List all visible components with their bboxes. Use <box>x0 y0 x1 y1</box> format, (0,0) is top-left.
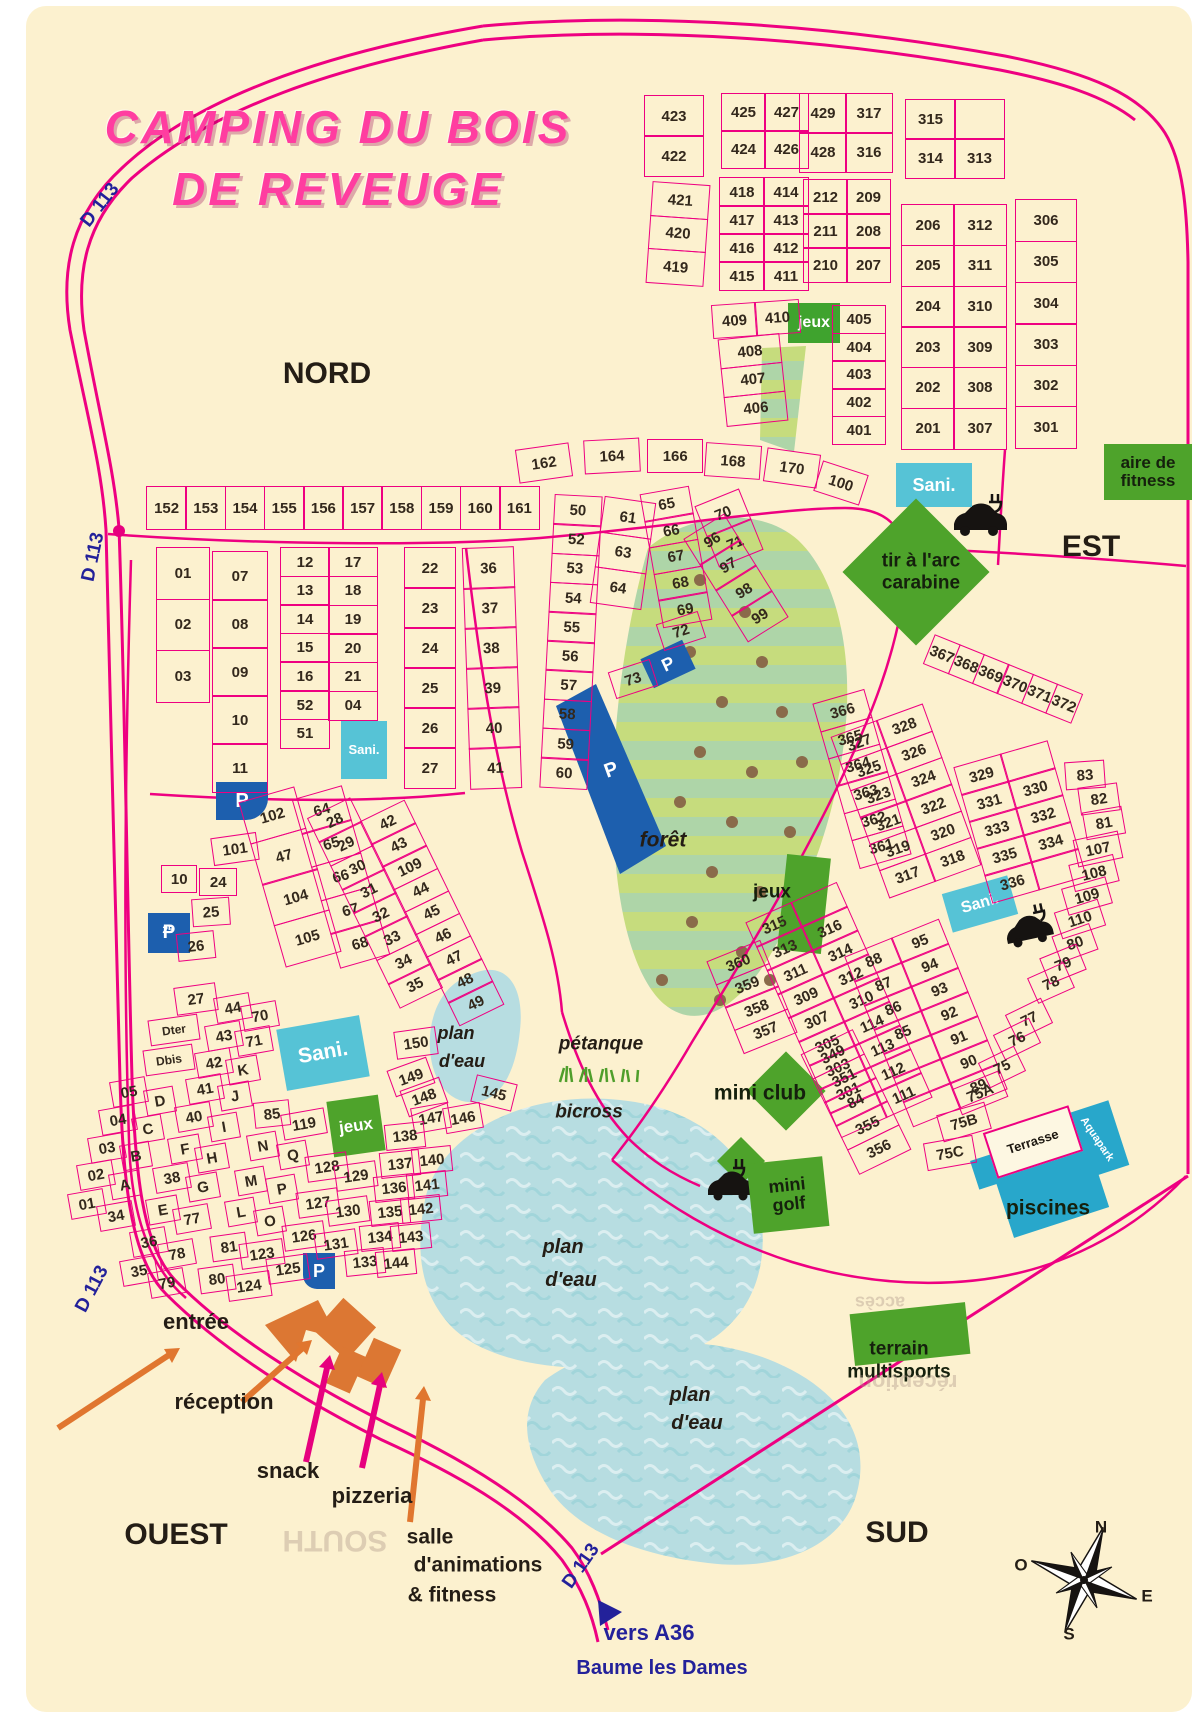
plot-60: 60 <box>540 757 589 790</box>
plot-150: 150 <box>393 1026 438 1060</box>
sani-west-label: Sani. <box>348 743 379 757</box>
plot-138: 138 <box>384 1121 426 1151</box>
label-entree: entrée <box>163 1311 229 1333</box>
label-mini-club: mini club <box>714 1083 806 1104</box>
label-baume-les-dames: Baume les Dames <box>576 1658 747 1678</box>
label-p25-sub: 25 <box>162 926 173 936</box>
plot-21: 21 <box>328 662 378 692</box>
label-compass-n: N <box>1095 1519 1107 1536</box>
plot-159: 159 <box>421 486 462 530</box>
label-snack: snack <box>257 1460 319 1482</box>
plot-17: 17 <box>328 547 378 577</box>
block-07: 0708091011 <box>213 552 267 792</box>
block-409: 409410 <box>712 300 800 338</box>
plot-422: 422 <box>644 135 704 177</box>
block-421: 421420419 <box>647 182 710 286</box>
plot-Dter: Dter <box>148 1014 201 1047</box>
plot-27: 27 <box>404 747 456 789</box>
label-d113-s: D 113 <box>559 1540 603 1592</box>
plot-23: 23 <box>404 587 456 629</box>
plot-156: 156 <box>303 486 344 530</box>
plot-27: 27 <box>173 982 218 1016</box>
label-jeux-east: jeux <box>753 883 791 902</box>
plot-207: 207 <box>846 247 891 283</box>
plot-37: 37 <box>463 586 516 629</box>
block-327: 327328325326323324321322319320317318 <box>832 705 980 898</box>
label-tir-1: tir à l'arc <box>882 552 960 571</box>
plot-301: 301 <box>1015 406 1077 449</box>
plot-75C: 75C <box>923 1135 977 1171</box>
plot-401: 401 <box>832 416 886 445</box>
label-salle-1: salle <box>407 1527 454 1548</box>
plot-157: 157 <box>342 486 383 530</box>
label-plan-deau-1a: plan <box>437 1024 474 1042</box>
plot-161: 161 <box>499 486 540 530</box>
plot-158: 158 <box>381 486 422 530</box>
plot-08: 08 <box>212 599 268 649</box>
plot-52: 52 <box>552 523 601 556</box>
plot-51: 51 <box>280 719 330 749</box>
plot-57: 57 <box>544 669 593 702</box>
camping-map: P <box>0 0 1204 1718</box>
plot-307: 307 <box>953 408 1007 450</box>
label-plan-deau-2b: d'eau <box>545 1270 596 1290</box>
plot-410: 410 <box>754 299 801 336</box>
plot-22: 22 <box>404 547 456 589</box>
plot-311: 311 <box>953 245 1007 287</box>
plot-209: 209 <box>846 179 891 215</box>
plot-313: 313 <box>954 138 1005 179</box>
plot-317: 317 <box>845 93 893 134</box>
plot-78: 78 <box>157 1238 197 1270</box>
plot-26: 26 <box>176 930 217 962</box>
plot-55: 55 <box>547 611 596 644</box>
plot-429: 429 <box>799 93 847 134</box>
plot-205: 205 <box>901 245 955 287</box>
label-petanque: pétanque <box>559 1035 643 1054</box>
plot-119: 119 <box>280 1108 328 1141</box>
jeux-west: jeux <box>326 1095 385 1158</box>
label-salle-3: & fitness <box>408 1585 497 1606</box>
plot-52: 52 <box>280 690 330 720</box>
plot-303: 303 <box>1015 323 1077 366</box>
plot-24: 24 <box>404 627 456 669</box>
plot-204: 204 <box>901 286 955 328</box>
plot-B: B <box>119 1141 153 1172</box>
plot-empty <box>954 99 1005 140</box>
plot-170: 170 <box>763 448 821 489</box>
label-ouest: OUEST <box>124 1520 227 1550</box>
plot-316: 316 <box>845 132 893 173</box>
plot-404: 404 <box>832 333 886 362</box>
plot-162: 162 <box>515 443 573 484</box>
plot-P: P <box>265 1174 299 1205</box>
plot-144: 144 <box>375 1248 417 1278</box>
plot-411: 411 <box>763 261 809 291</box>
map-title: CAMPING DU BOIS DE REVEUGE <box>78 100 598 216</box>
plot-36: 36 <box>462 546 515 589</box>
plot-308: 308 <box>953 367 1007 409</box>
parking-mid-label: P <box>659 653 678 675</box>
plot-39: 39 <box>466 666 519 709</box>
plot-12: 12 <box>280 547 330 577</box>
plot-428: 428 <box>799 132 847 173</box>
plot-146: 146 <box>442 1102 484 1134</box>
plot-124: 124 <box>226 1270 273 1302</box>
plot-312: 312 <box>953 204 1007 246</box>
block-408: 408407406 <box>719 334 788 426</box>
plot-315: 315 <box>905 99 956 140</box>
ghost-text: réception <box>858 1369 957 1395</box>
block-405: 405404403402401 <box>833 306 885 444</box>
plot-10: 10 <box>161 865 197 893</box>
plot-10: 10 <box>212 695 268 745</box>
label-est: EST <box>1062 532 1120 562</box>
map-title-line2: DE REVEUGE <box>78 162 598 216</box>
label-compass-s: S <box>1063 1626 1074 1643</box>
label-plan-deau-3a: plan <box>669 1385 710 1405</box>
sani-center-label: Sani. <box>296 1038 349 1068</box>
plot-15: 15 <box>280 633 330 663</box>
plot-412: 412 <box>763 233 809 263</box>
aire-de-fitness: aire de fitness <box>1104 444 1192 500</box>
plot-202: 202 <box>901 367 955 409</box>
plot-168: 168 <box>704 442 762 480</box>
plot-Dbis: Dbis <box>143 1044 196 1077</box>
label-compass-e: E <box>1141 1588 1152 1605</box>
plot-34: 34 <box>96 1200 136 1232</box>
plot-04: 04 <box>328 691 378 721</box>
block-01: 010203 <box>157 548 209 702</box>
plot-11: 11 <box>212 743 268 793</box>
plot-203: 203 <box>901 326 955 368</box>
block-315: 315314313 <box>906 100 1004 178</box>
plot-423: 423 <box>644 95 704 137</box>
plot-14: 14 <box>280 604 330 634</box>
block-418: 418414417413416412415411 <box>720 178 808 290</box>
block-152: 152153154155156157158159160161 <box>147 487 539 529</box>
plot-142: 142 <box>400 1194 442 1224</box>
plot-201: 201 <box>901 408 955 450</box>
plot-405: 405 <box>832 305 886 334</box>
plot-71: 71 <box>234 1025 274 1057</box>
plot-24: 24 <box>199 868 237 896</box>
label-sud: SUD <box>865 1518 928 1548</box>
terrasse-label: Terrasse <box>1006 1127 1061 1156</box>
plot-211: 211 <box>803 213 848 249</box>
block-367: 367368369370371372 <box>924 635 1082 722</box>
plot-414: 414 <box>763 177 809 207</box>
plot-305: 305 <box>1015 241 1077 284</box>
plot-212: 212 <box>803 179 848 215</box>
plot-64: 64 <box>590 566 646 610</box>
plot-130: 130 <box>326 1195 371 1227</box>
plot-19: 19 <box>328 605 378 635</box>
plot-03: 03 <box>156 650 210 703</box>
block-306: 306305304303302301 <box>1016 200 1076 448</box>
plot-56: 56 <box>546 640 595 673</box>
plot-100: 100 <box>813 461 869 506</box>
label-vers-a36: vers A36 <box>604 1622 695 1644</box>
plot-402: 402 <box>832 388 886 417</box>
plot-164: 164 <box>583 438 641 475</box>
jeux-north-label: jeux <box>798 315 830 332</box>
label-d113-w: D 113 <box>79 531 108 584</box>
plot-417: 417 <box>719 205 765 235</box>
plot-413: 413 <box>763 205 809 235</box>
plot-415: 415 <box>719 261 765 291</box>
map-content-layer: Sani.Sani.Sani.Sani.jeuxjeuxaire de fitn… <box>0 0 1204 1718</box>
plot-304: 304 <box>1015 282 1077 325</box>
plot-79: 79 <box>147 1267 187 1299</box>
plot-160: 160 <box>460 486 501 530</box>
plot-58: 58 <box>543 698 592 731</box>
label-foret: forêt <box>640 830 687 851</box>
plot-13: 13 <box>280 576 330 606</box>
plot-206: 206 <box>901 204 955 246</box>
plot-09: 09 <box>212 647 268 697</box>
plot-419: 419 <box>646 248 706 287</box>
sani-north-label: Sani. <box>912 476 955 495</box>
plot-59: 59 <box>541 727 590 760</box>
block-22: 222324252627 <box>405 548 455 788</box>
plot-25: 25 <box>191 897 231 928</box>
plot-409: 409 <box>711 302 758 339</box>
sani-west: Sani. <box>341 721 387 779</box>
plot-26: 26 <box>404 707 456 749</box>
plot-310: 310 <box>953 286 1007 328</box>
plot-41: 41 <box>469 746 522 789</box>
jeux-west-label: jeux <box>338 1115 374 1137</box>
plot-152: 152 <box>146 486 187 530</box>
parking-south-label: P <box>313 1262 325 1281</box>
plot-J: J <box>217 1081 253 1112</box>
plot-07: 07 <box>212 551 268 601</box>
plot-153: 153 <box>185 486 226 530</box>
plot-40: 40 <box>468 706 521 749</box>
label-salle-2: d'animations <box>414 1555 543 1576</box>
label-d113-sw: D 113 <box>72 1263 112 1316</box>
plot-306: 306 <box>1015 199 1077 242</box>
label-bicross: bicross <box>555 1103 623 1122</box>
label-piscines: piscines <box>1006 1198 1090 1219</box>
block-425: 425427424426 <box>722 94 808 168</box>
plot-18: 18 <box>328 576 378 606</box>
label-reception: réception <box>174 1391 273 1413</box>
plot-155: 155 <box>264 486 305 530</box>
ghost-text: accès <box>855 1292 905 1313</box>
plot-166: 166 <box>647 439 703 473</box>
plot-25: 25 <box>404 667 456 709</box>
plot-425: 425 <box>721 93 766 132</box>
block-36: 363738394041 <box>463 547 521 789</box>
plot-154: 154 <box>225 486 266 530</box>
plot-210: 210 <box>803 247 848 283</box>
plot-424: 424 <box>721 130 766 169</box>
aquapark-label: Aquapark <box>1077 1116 1115 1165</box>
plot-D: D <box>143 1086 177 1117</box>
block-50: 50525354555657585960 <box>540 495 601 789</box>
block-17: 171819202104 <box>329 548 377 720</box>
label-compass-o: O <box>1014 1557 1027 1574</box>
ghost-text: SOUTH <box>283 1523 388 1557</box>
plot-I: I <box>207 1112 241 1143</box>
label-nord: NORD <box>283 359 371 389</box>
label-pizzeria: pizzeria <box>332 1485 413 1507</box>
plot-73: 73 <box>608 659 658 699</box>
label-plan-deau-2a: plan <box>542 1237 583 1257</box>
block-206: 206312205311204310203309202308201307 <box>902 205 1006 449</box>
plot-309: 309 <box>953 326 1007 368</box>
label-tir-2: carabine <box>882 574 960 593</box>
plot-208: 208 <box>846 213 891 249</box>
block-423: 423422 <box>645 96 703 176</box>
plot-314: 314 <box>905 138 956 179</box>
plot-101: 101 <box>210 832 259 866</box>
plot-M: M <box>234 1166 268 1197</box>
plot-406: 406 <box>724 390 788 427</box>
plot-H: H <box>194 1143 230 1174</box>
plot-302: 302 <box>1015 365 1077 408</box>
block-429: 429317428316 <box>800 94 892 172</box>
plot-02: 02 <box>156 599 210 652</box>
plot-77: 77 <box>172 1203 212 1235</box>
mini-golf-label: mini golf <box>768 1174 809 1215</box>
plot-418: 418 <box>719 177 765 207</box>
plot-38: 38 <box>465 626 518 669</box>
plot-50: 50 <box>553 494 602 527</box>
mini-golf: mini golf <box>747 1156 830 1234</box>
block-212: 212209211208210207 <box>804 180 890 282</box>
plot-16: 16 <box>280 661 330 691</box>
plot-403: 403 <box>832 360 886 389</box>
map-title-line1: CAMPING DU BOIS <box>78 100 598 154</box>
plot-N: N <box>246 1131 280 1162</box>
plot-20: 20 <box>328 633 378 663</box>
sani-north: Sani. <box>896 463 972 507</box>
label-plan-deau-1b: d'eau <box>439 1052 485 1070</box>
plot-01: 01 <box>156 547 210 600</box>
label-terrain-1: terrain <box>869 1340 928 1359</box>
label-plan-deau-3b: d'eau <box>671 1413 722 1433</box>
aire-de-fitness-label: aire de fitness <box>1121 454 1176 490</box>
plot-416: 416 <box>719 233 765 263</box>
sani-center: Sani. <box>276 1015 369 1091</box>
plot-G: G <box>185 1172 221 1203</box>
plot-A: A <box>108 1170 142 1201</box>
block-12: 12131415165251 <box>281 548 329 748</box>
